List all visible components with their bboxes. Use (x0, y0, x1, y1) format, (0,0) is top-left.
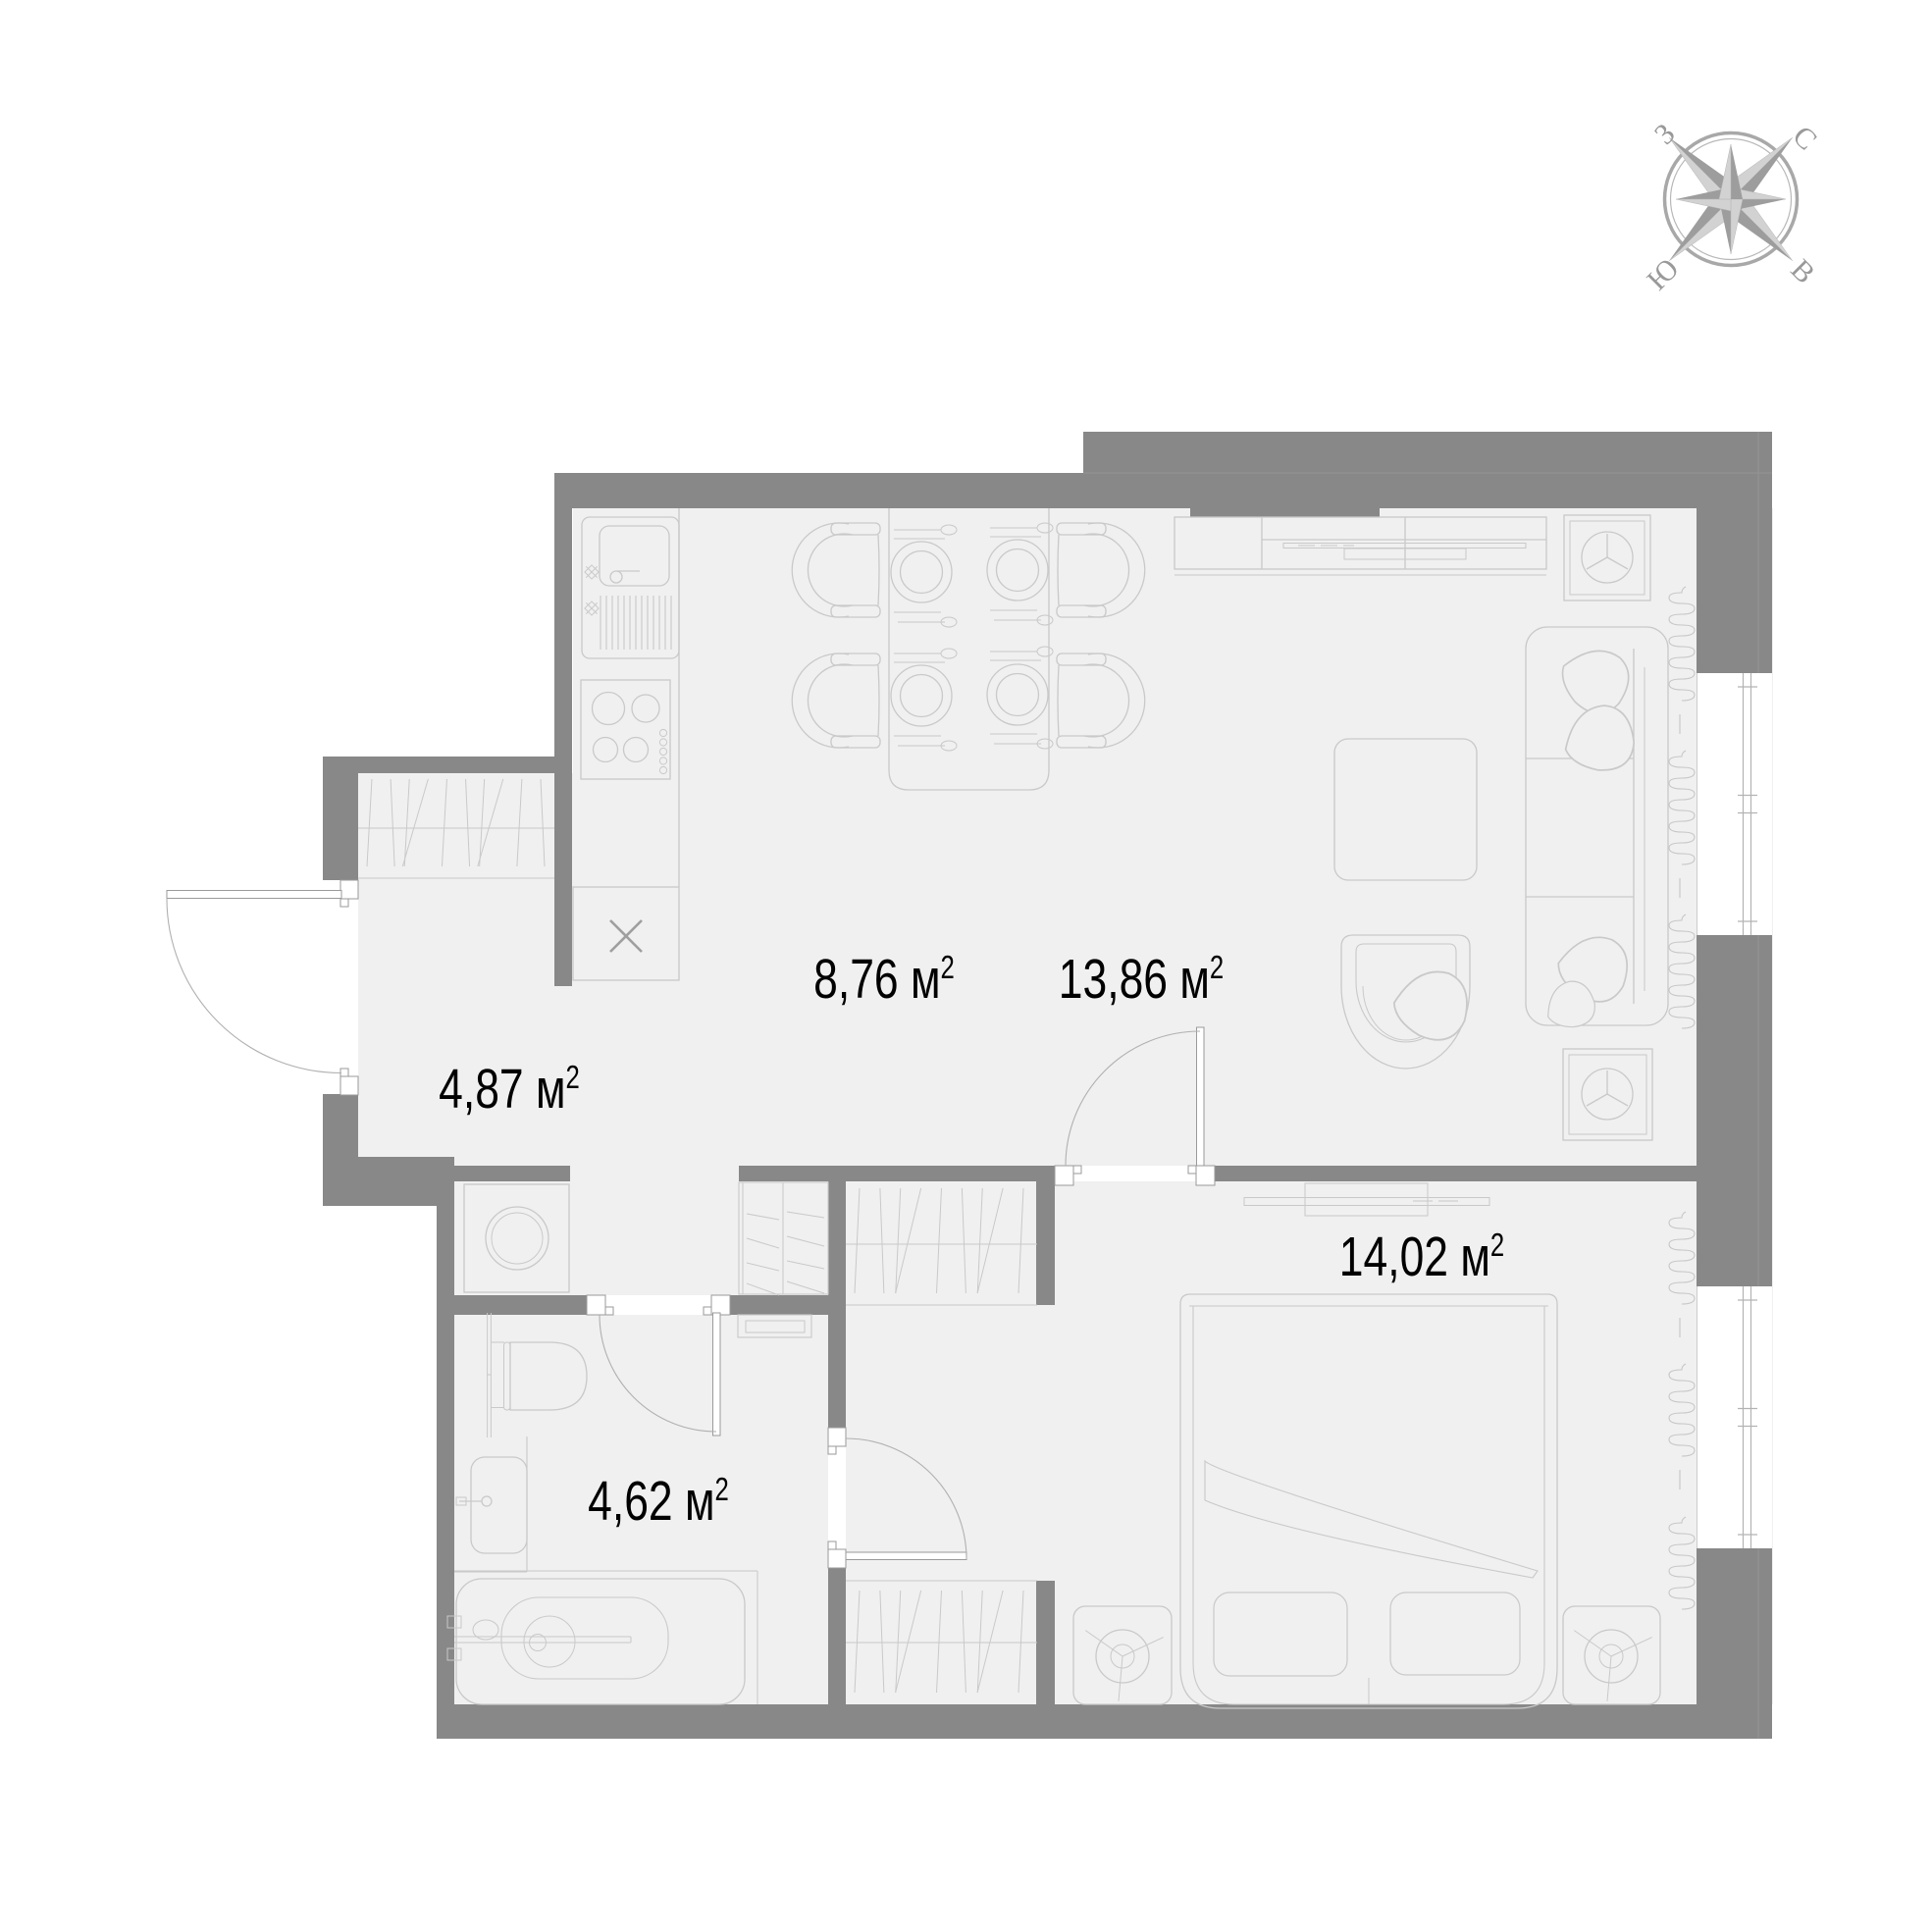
svg-text:4,87 м2: 4,87 м2 (439, 1058, 580, 1121)
svg-text:4,62 м2: 4,62 м2 (588, 1470, 729, 1533)
svg-text:14,02 м2: 14,02 м2 (1339, 1226, 1504, 1288)
svg-text:Ю: Ю (1641, 252, 1685, 296)
svg-text:С: С (1786, 120, 1822, 156)
svg-text:8,76 м2: 8,76 м2 (813, 948, 955, 1011)
svg-text:13,86 м2: 13,86 м2 (1059, 948, 1224, 1011)
